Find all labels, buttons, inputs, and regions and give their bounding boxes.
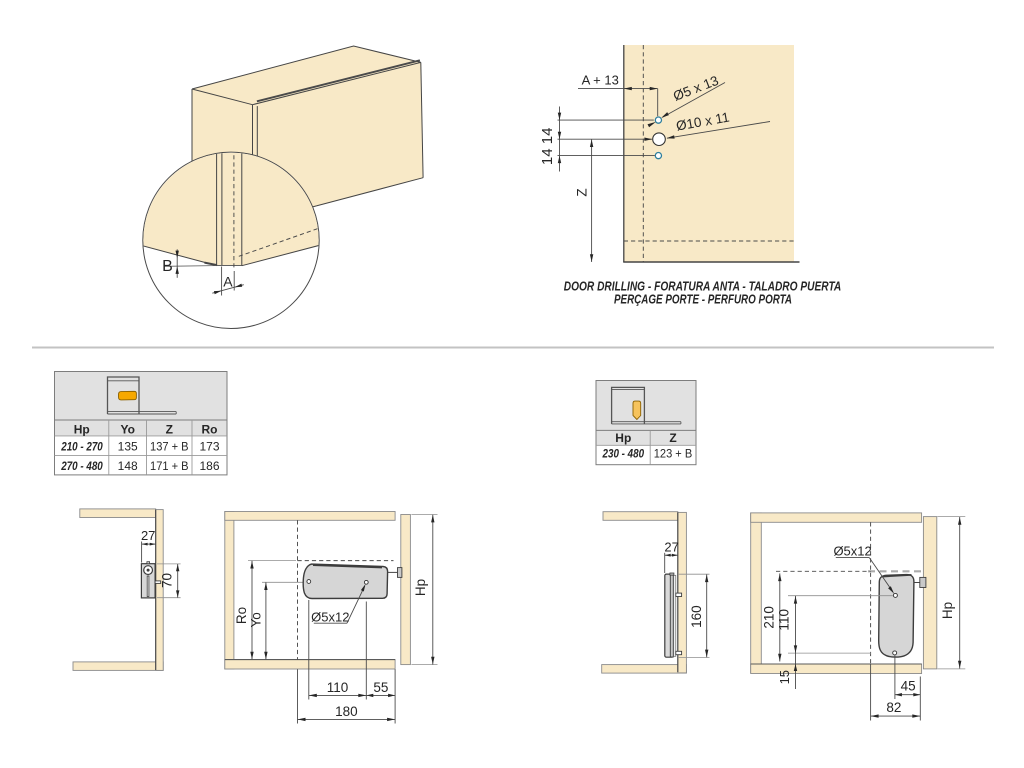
svg-text:Z: Z: [575, 188, 590, 196]
svg-text:Ro: Ro: [202, 422, 218, 436]
svg-text:45: 45: [901, 679, 916, 694]
svg-text:Hp: Hp: [615, 431, 631, 445]
svg-text:Yo: Yo: [120, 422, 134, 436]
svg-text:A: A: [223, 273, 233, 289]
svg-text:270 - 480: 270 - 480: [60, 459, 103, 473]
svg-text:70: 70: [160, 573, 175, 588]
svg-text:27: 27: [141, 528, 155, 543]
svg-text:B: B: [162, 258, 173, 275]
svg-text:173: 173: [199, 440, 219, 454]
svg-text:Z: Z: [669, 431, 676, 445]
svg-text:180: 180: [335, 704, 358, 719]
svg-text:110: 110: [777, 609, 792, 631]
svg-text:Z: Z: [166, 422, 173, 436]
svg-text:230 - 480: 230 - 480: [602, 446, 645, 460]
svg-text:55: 55: [373, 680, 388, 695]
svg-text:123 + B: 123 + B: [654, 446, 693, 460]
svg-text:210 - 270: 210 - 270: [60, 440, 103, 454]
svg-text:160: 160: [689, 605, 704, 628]
svg-text:148: 148: [118, 459, 138, 473]
svg-text:137 + B: 137 + B: [150, 440, 189, 454]
svg-text:27: 27: [664, 539, 678, 554]
svg-text:A + 13: A + 13: [582, 72, 619, 87]
svg-text:PERÇAGE PORTE - PERFURO PORTA: PERÇAGE PORTE - PERFURO PORTA: [614, 291, 792, 306]
svg-text:210: 210: [761, 606, 776, 629]
svg-text:Hp: Hp: [74, 422, 90, 436]
svg-text:Yo: Yo: [249, 612, 264, 627]
svg-text:Ø5x12: Ø5x12: [311, 610, 349, 625]
svg-text:Ø5x12: Ø5x12: [833, 544, 871, 559]
svg-text:110: 110: [327, 680, 349, 695]
svg-text:14 14: 14 14: [539, 128, 556, 166]
svg-text:Hp: Hp: [413, 579, 428, 596]
svg-text:Hp: Hp: [940, 602, 955, 619]
svg-text:186: 186: [199, 459, 219, 473]
svg-text:Ro: Ro: [234, 607, 249, 624]
svg-text:171 + B: 171 + B: [150, 459, 189, 473]
svg-text:15: 15: [777, 670, 792, 684]
svg-text:82: 82: [886, 700, 901, 715]
svg-text:135: 135: [118, 440, 138, 454]
